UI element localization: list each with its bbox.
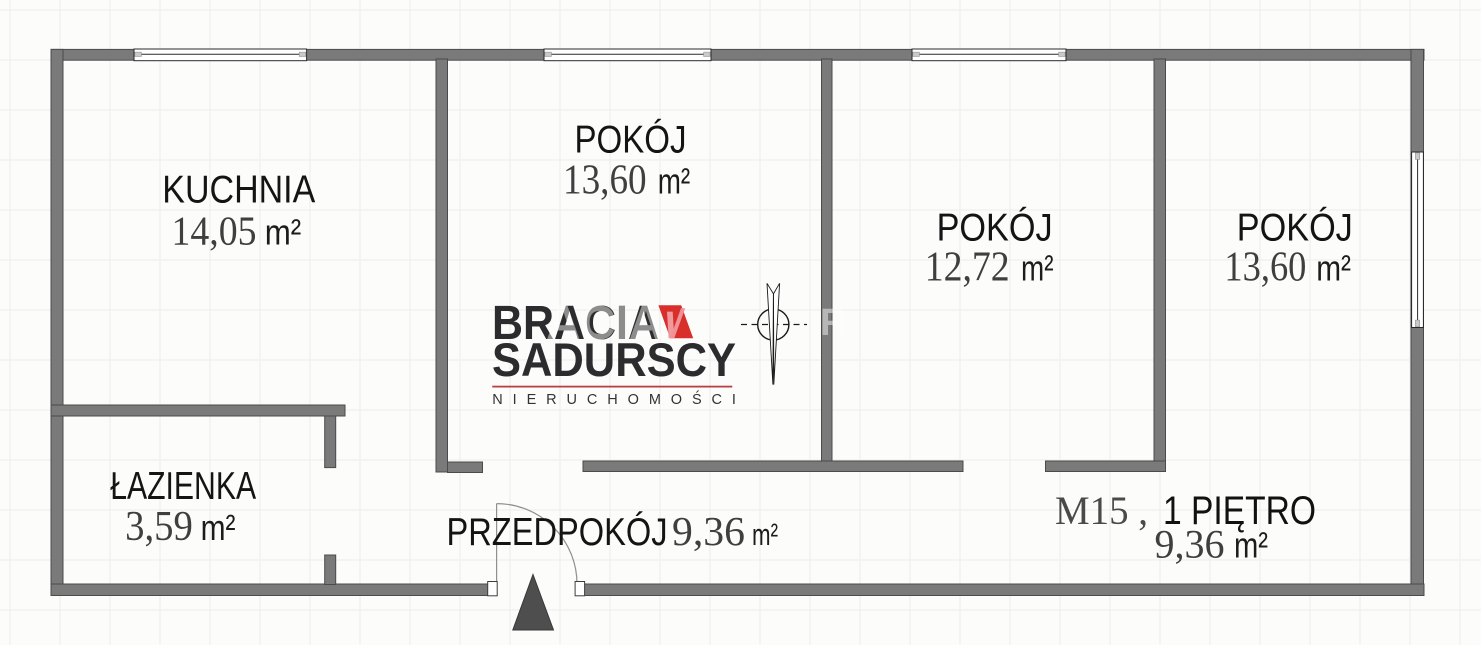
- svg-text:m²: m²: [1234, 525, 1268, 566]
- svg-text:POKÓJ: POKÓJ: [937, 207, 1053, 250]
- svg-text:12,72: 12,72: [925, 245, 1010, 291]
- svg-text:ŁAZIENKA: ŁAZIENKA: [110, 465, 256, 508]
- svg-text:13,60: 13,60: [563, 158, 647, 204]
- svg-text:POKÓJ: POKÓJ: [575, 119, 687, 162]
- svg-text:m²: m²: [658, 161, 691, 202]
- svg-text:KUCHNIA: KUCHNIA: [162, 169, 315, 212]
- svg-text:m²: m²: [752, 517, 778, 552]
- svg-text:NIERUCHOMOŚCI: NIERUCHOMOŚCI: [492, 390, 746, 408]
- svg-text:ACIA: ACIA: [546, 297, 663, 350]
- svg-text:M15 ,: M15 ,: [1055, 488, 1148, 533]
- svg-text:PRZEDPOKÓJ: PRZEDPOKÓJ: [447, 511, 668, 554]
- svg-text:9,36: 9,36: [1155, 522, 1225, 567]
- svg-text:R: R: [820, 302, 847, 344]
- svg-text:9,36: 9,36: [672, 508, 745, 554]
- svg-text:13,60: 13,60: [1224, 245, 1306, 291]
- svg-text:m²: m²: [1316, 248, 1351, 289]
- svg-text:m²: m²: [1021, 248, 1054, 289]
- svg-text:m²: m²: [201, 507, 236, 548]
- svg-text:m²: m²: [265, 212, 302, 253]
- svg-text:14,05: 14,05: [172, 208, 257, 254]
- svg-text:POKÓJ: POKÓJ: [1237, 207, 1353, 250]
- svg-text:3,59: 3,59: [125, 504, 193, 550]
